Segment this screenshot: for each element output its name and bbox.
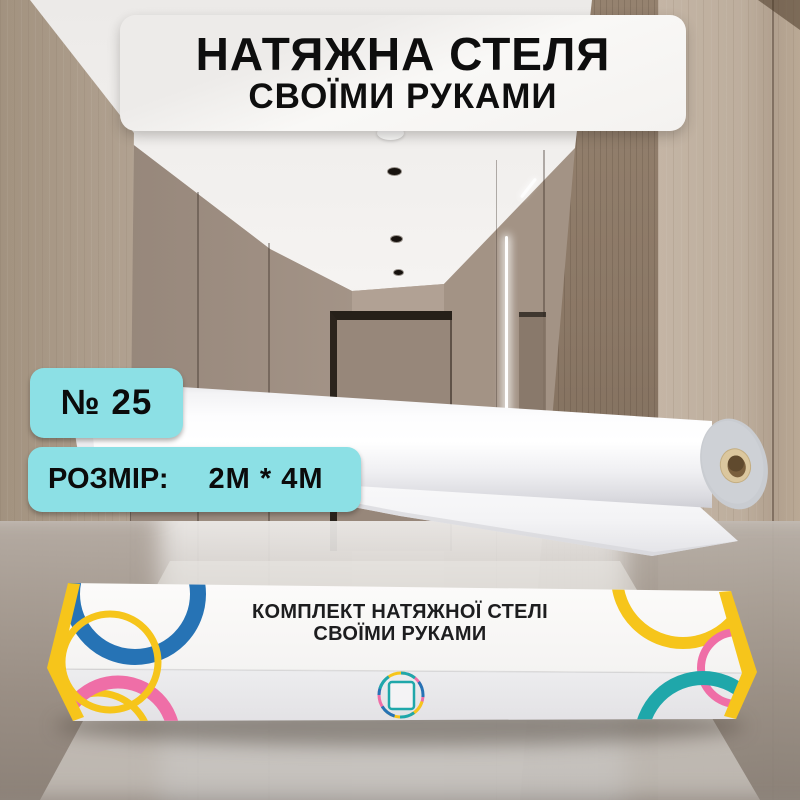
- box-title-line1: КОМПЛЕКТ НАТЯЖНОЇ СТЕЛІ: [120, 601, 680, 623]
- ceiling-spotlight: [394, 270, 403, 275]
- box-title-line2: СВОЇМИ РУКАМИ: [120, 623, 680, 645]
- packaging-box-image: [0, 560, 800, 740]
- size-value: 2М * 4М: [209, 463, 324, 496]
- product-number-badge: № 25: [30, 368, 183, 438]
- title-line1: НАТЯЖНА СТЕЛЯ: [196, 30, 611, 78]
- product-number-text: № 25: [61, 383, 153, 423]
- box-title: КОМПЛЕКТ НАТЯЖНОЇ СТЕЛІ СВОЇМИ РУКАМИ: [120, 601, 680, 645]
- size-label: РОЗМІР:: [48, 463, 169, 496]
- size-badge: РОЗМІР: 2М * 4М: [28, 447, 361, 512]
- product-card: № 25 РОЗМІР: 2М * 4М: [0, 0, 800, 800]
- ceiling-spotlight: [391, 236, 402, 242]
- title-banner: НАТЯЖНА СТЕЛЯ СВОЇМИ РУКАМИ: [120, 15, 686, 131]
- ceiling-spotlight: [388, 168, 401, 175]
- title-line2: СВОЇМИ РУКАМИ: [248, 78, 557, 116]
